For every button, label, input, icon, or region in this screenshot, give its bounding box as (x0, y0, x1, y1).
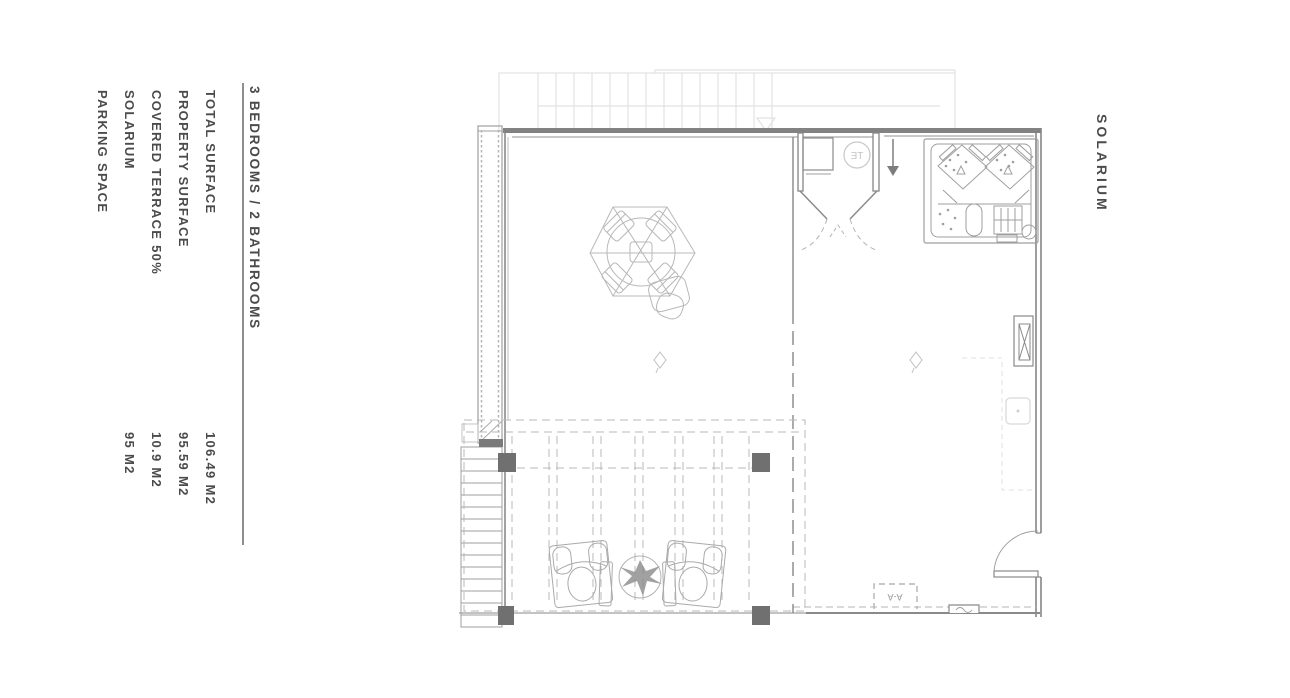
spec-value-solarium: 95 M2 (122, 432, 137, 475)
spec-divider (242, 83, 244, 545)
door-leaf (994, 571, 1038, 577)
post (498, 606, 514, 625)
te-label: TE (850, 151, 863, 162)
door-swing-arc (994, 531, 1038, 571)
dining-table (607, 218, 675, 286)
door-swing-arc (798, 219, 827, 251)
vent-box (1014, 316, 1033, 366)
lounger-left (549, 540, 617, 612)
spec-label-covered-terrace: COVERED TERRACE 50% (149, 90, 164, 275)
post (498, 453, 516, 472)
diamond-symbol (654, 352, 922, 373)
spec-label-solarium: SOLARIUM (122, 90, 137, 170)
stair-landing (479, 439, 503, 447)
spec-label-total-surface: TOTAL SURFACE (203, 90, 218, 215)
stair-arrow-icon (887, 139, 899, 176)
parasol-hexagon (590, 207, 695, 296)
room-label-solarium: SOLARIUM (1094, 114, 1110, 213)
water-heater (803, 138, 833, 170)
tech-room: TE (798, 133, 879, 251)
threshold-notch (949, 605, 979, 613)
spec-value-total-surface: 106.49 M2 (203, 432, 218, 505)
walls (459, 128, 1041, 617)
planter-strip (478, 126, 502, 443)
post (752, 606, 770, 625)
upper-stairs-faint (499, 70, 955, 131)
counter-faint (962, 358, 1036, 490)
spec-label-parking-space: PARKING SPACE (95, 90, 110, 213)
chair (645, 210, 678, 243)
stairs (461, 424, 503, 627)
pergola-posts (498, 453, 770, 625)
page: 3 BEDROOMS / 2 BATHROOMS TOTAL SURFACE P… (0, 0, 1290, 698)
spec-title: 3 BEDROOMS / 2 BATHROOMS (247, 86, 262, 330)
door-swing-arc (850, 219, 879, 251)
dining-set (590, 207, 695, 322)
spec-value-covered-terrace: 10.9 M2 (149, 432, 164, 488)
section-marker: A-A (874, 584, 917, 609)
top-wall (503, 128, 1041, 133)
jacuzzi (924, 139, 1038, 243)
jacuzzi-jets (939, 154, 1015, 231)
post (752, 453, 770, 472)
section-label: A-A (887, 592, 902, 602)
pergola (464, 420, 805, 611)
lounger-right (658, 540, 726, 612)
floor-plan: TE (440, 60, 1060, 670)
entry-door (994, 531, 1038, 577)
spec-value-property-surface: 95.59 M2 (176, 432, 191, 497)
jacuzzi-pillow (966, 204, 982, 236)
spec-label-property-surface: PROPERTY SURFACE (176, 90, 191, 248)
plant-table (619, 556, 662, 598)
